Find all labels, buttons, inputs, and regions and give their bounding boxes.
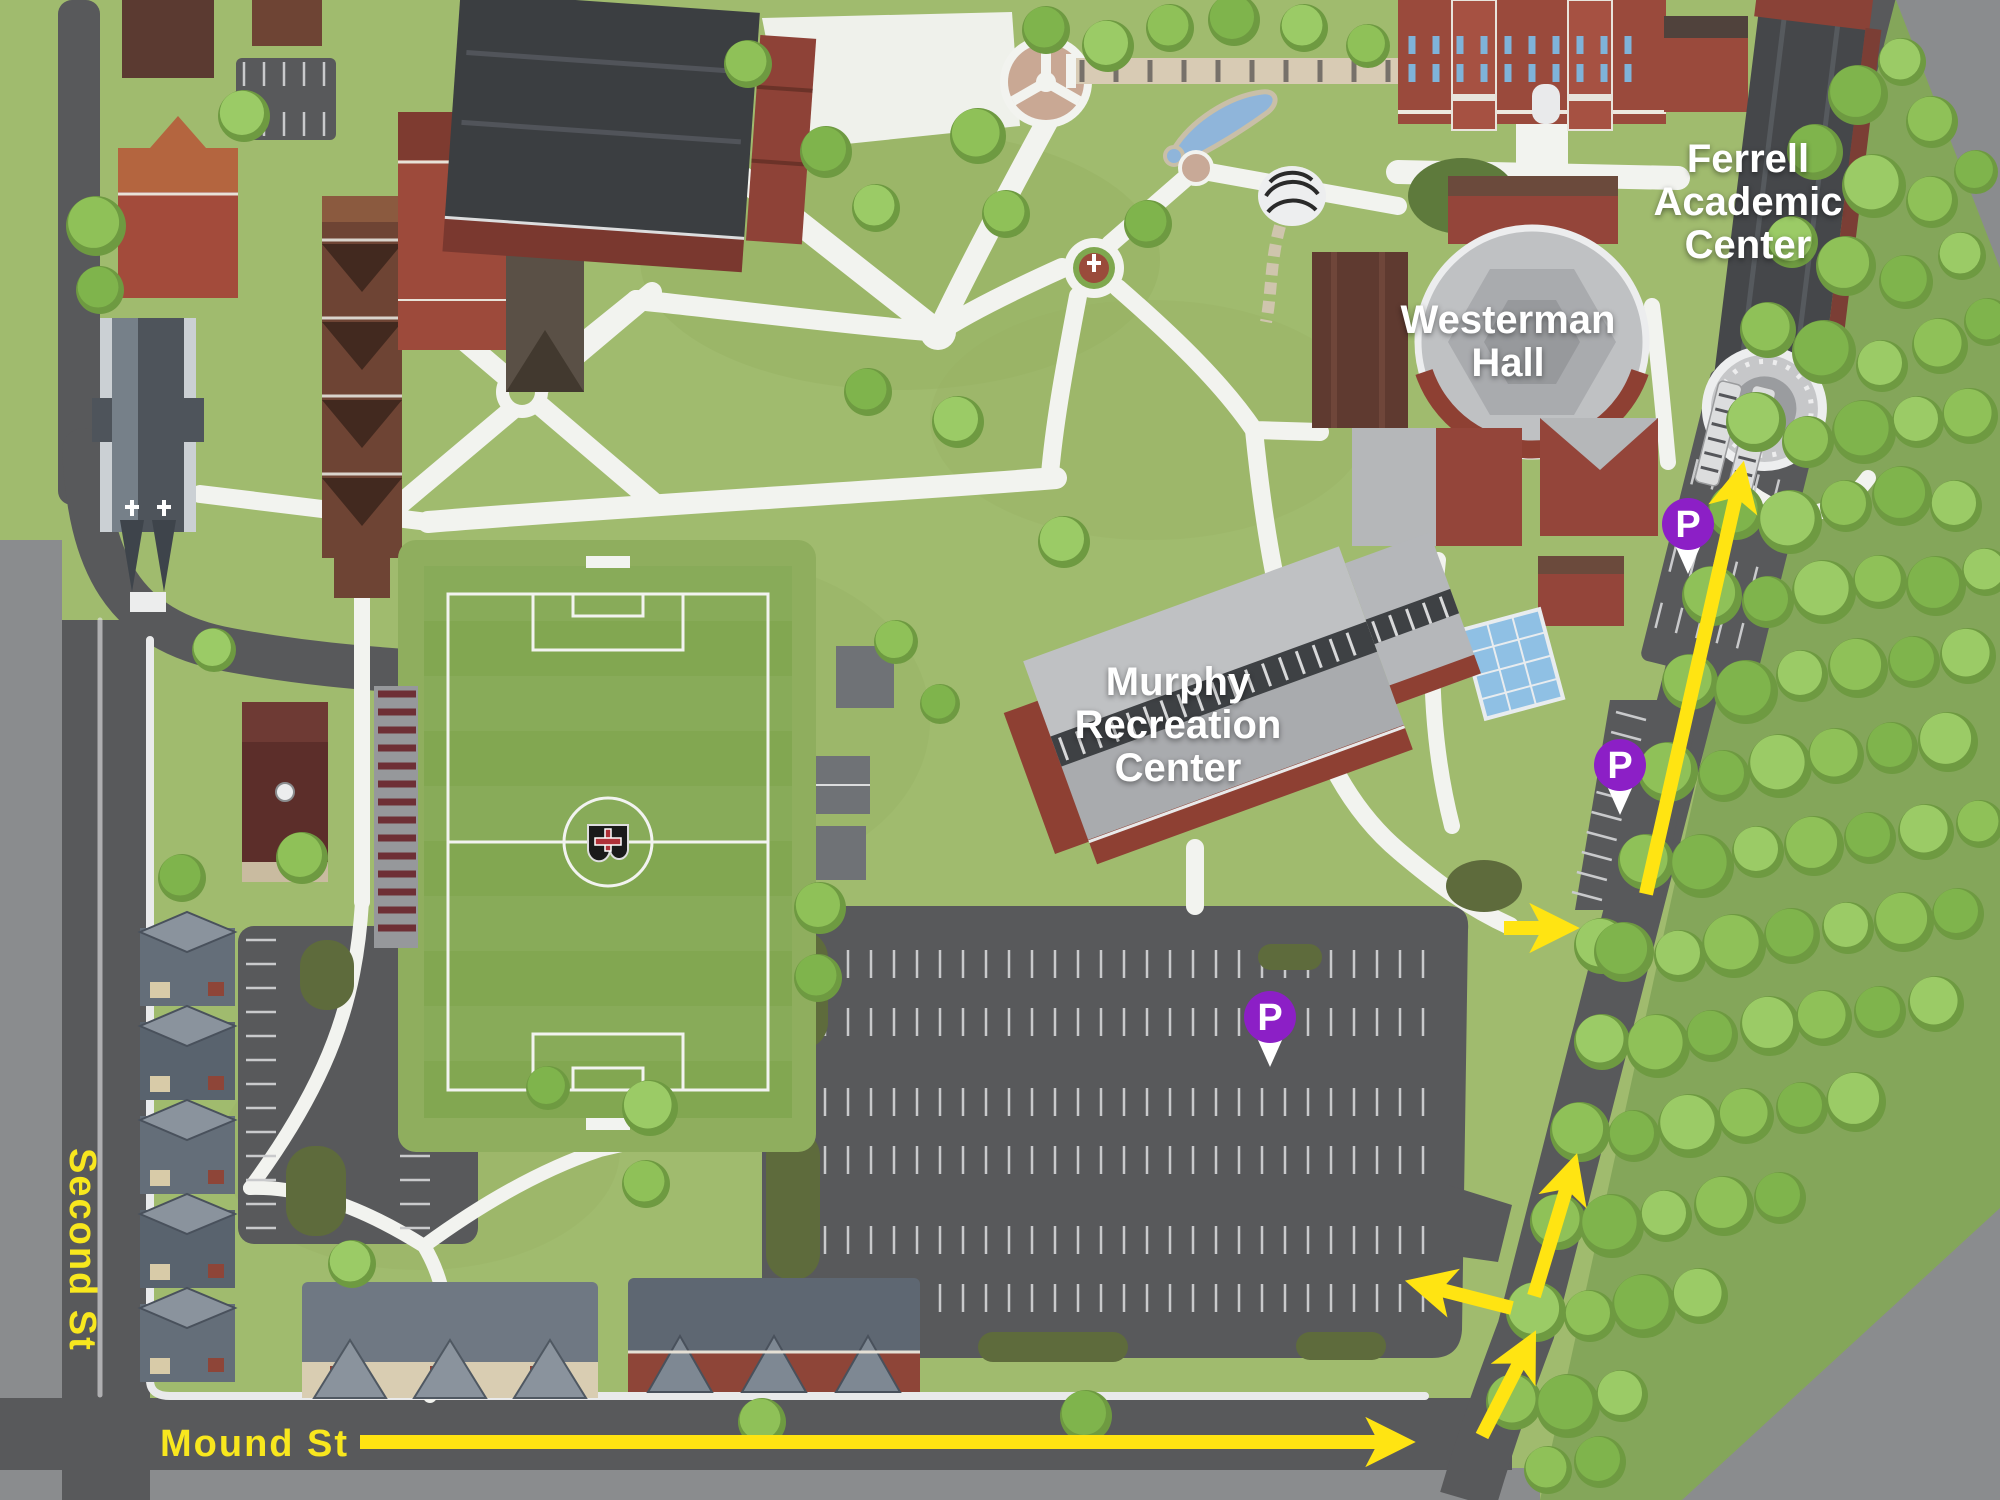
label-mound-st: Mound St — [160, 1423, 349, 1465]
svg-text:Center: Center — [1685, 223, 1812, 267]
svg-text:Recreation: Recreation — [1075, 703, 1282, 747]
residence-hall-south-1 — [302, 1282, 598, 1398]
large-charcoal-roof-building — [442, 0, 817, 276]
parking-pin-label: P — [1257, 997, 1282, 1039]
svg-text:Center: Center — [1115, 746, 1242, 790]
north-towers-hall — [1398, 0, 1748, 130]
svg-text:Westerman: Westerman — [1401, 298, 1616, 342]
parking-pin-label: P — [1607, 745, 1632, 787]
svg-text:Hall: Hall — [1471, 341, 1544, 385]
abbey-building — [322, 196, 402, 598]
soccer-field — [374, 540, 816, 1152]
plaza-node — [1180, 152, 1212, 184]
goal-north — [586, 556, 630, 568]
svg-text:Academic: Academic — [1654, 180, 1843, 224]
svg-text:Ferrell: Ferrell — [1687, 137, 1809, 181]
bleachers — [374, 686, 418, 948]
residence-hall-south-2 — [628, 1278, 920, 1392]
campus-map-canvas: P P P Ferrell Academic Center Westerman … — [0, 0, 2000, 1500]
label-second-st: Second St — [61, 1148, 103, 1352]
residence-hall-west — [140, 912, 235, 1382]
campus-map: P P P Ferrell Academic Center Westerman … — [0, 0, 2000, 1500]
fountain — [1064, 238, 1124, 298]
offcampus-south-strip — [0, 1468, 1540, 1500]
parking-pin-label: P — [1675, 504, 1700, 546]
field-crest-icon — [588, 825, 628, 861]
second-street-road — [62, 620, 150, 1500]
goal-south — [586, 1118, 630, 1130]
svg-text:Murphy: Murphy — [1106, 660, 1251, 704]
offcampus-west-strip — [0, 540, 62, 1500]
amphitheater — [1258, 166, 1326, 226]
